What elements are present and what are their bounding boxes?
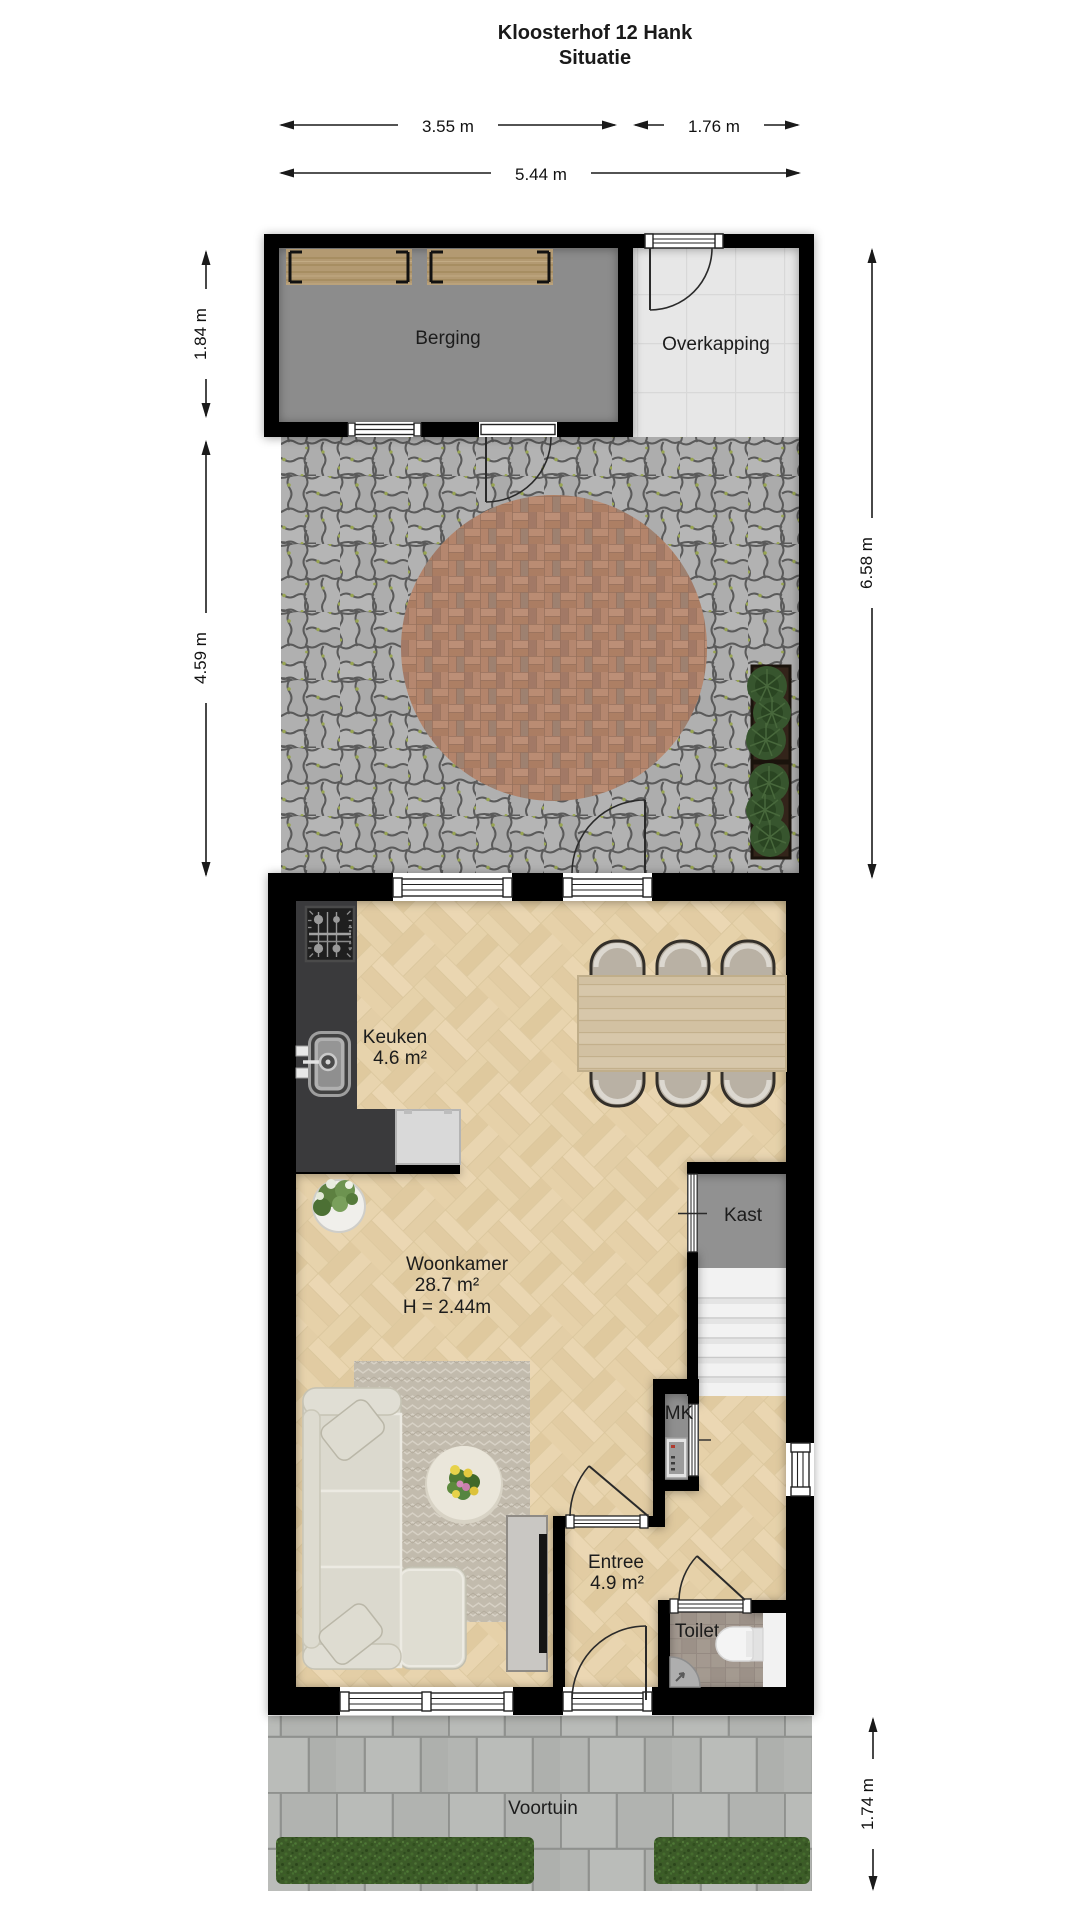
svg-text:Kloosterhof 12 Hank: Kloosterhof 12 Hank — [498, 22, 693, 44]
svg-text:4.9 m²: 4.9 m² — [590, 1573, 644, 1594]
svg-text:Situatie: Situatie — [559, 47, 631, 69]
svg-text:Voortuin: Voortuin — [508, 1798, 578, 1819]
svg-text:Toilet: Toilet — [675, 1621, 720, 1642]
svg-text:28.7 m²: 28.7 m² — [415, 1275, 479, 1296]
svg-text:3.55 m: 3.55 m — [422, 117, 474, 136]
svg-text:4.6 m²: 4.6 m² — [373, 1048, 427, 1069]
svg-text:Berging: Berging — [415, 328, 481, 349]
svg-text:6.58 m: 6.58 m — [857, 537, 876, 589]
svg-text:Kast: Kast — [724, 1205, 763, 1226]
svg-text:H = 2.44m: H = 2.44m — [403, 1297, 491, 1318]
svg-text:1.76 m: 1.76 m — [688, 117, 740, 136]
svg-text:Woonkamer: Woonkamer — [406, 1254, 509, 1275]
svg-text:5.44 m: 5.44 m — [515, 165, 567, 184]
svg-text:1.84 m: 1.84 m — [191, 308, 210, 360]
svg-text:1.74 m: 1.74 m — [858, 1778, 877, 1830]
svg-text:Keuken: Keuken — [363, 1027, 427, 1048]
svg-text:MK: MK — [665, 1403, 694, 1424]
svg-text:4.59 m: 4.59 m — [191, 632, 210, 684]
svg-text:Overkapping: Overkapping — [662, 334, 770, 355]
svg-text:Entree: Entree — [588, 1552, 644, 1573]
